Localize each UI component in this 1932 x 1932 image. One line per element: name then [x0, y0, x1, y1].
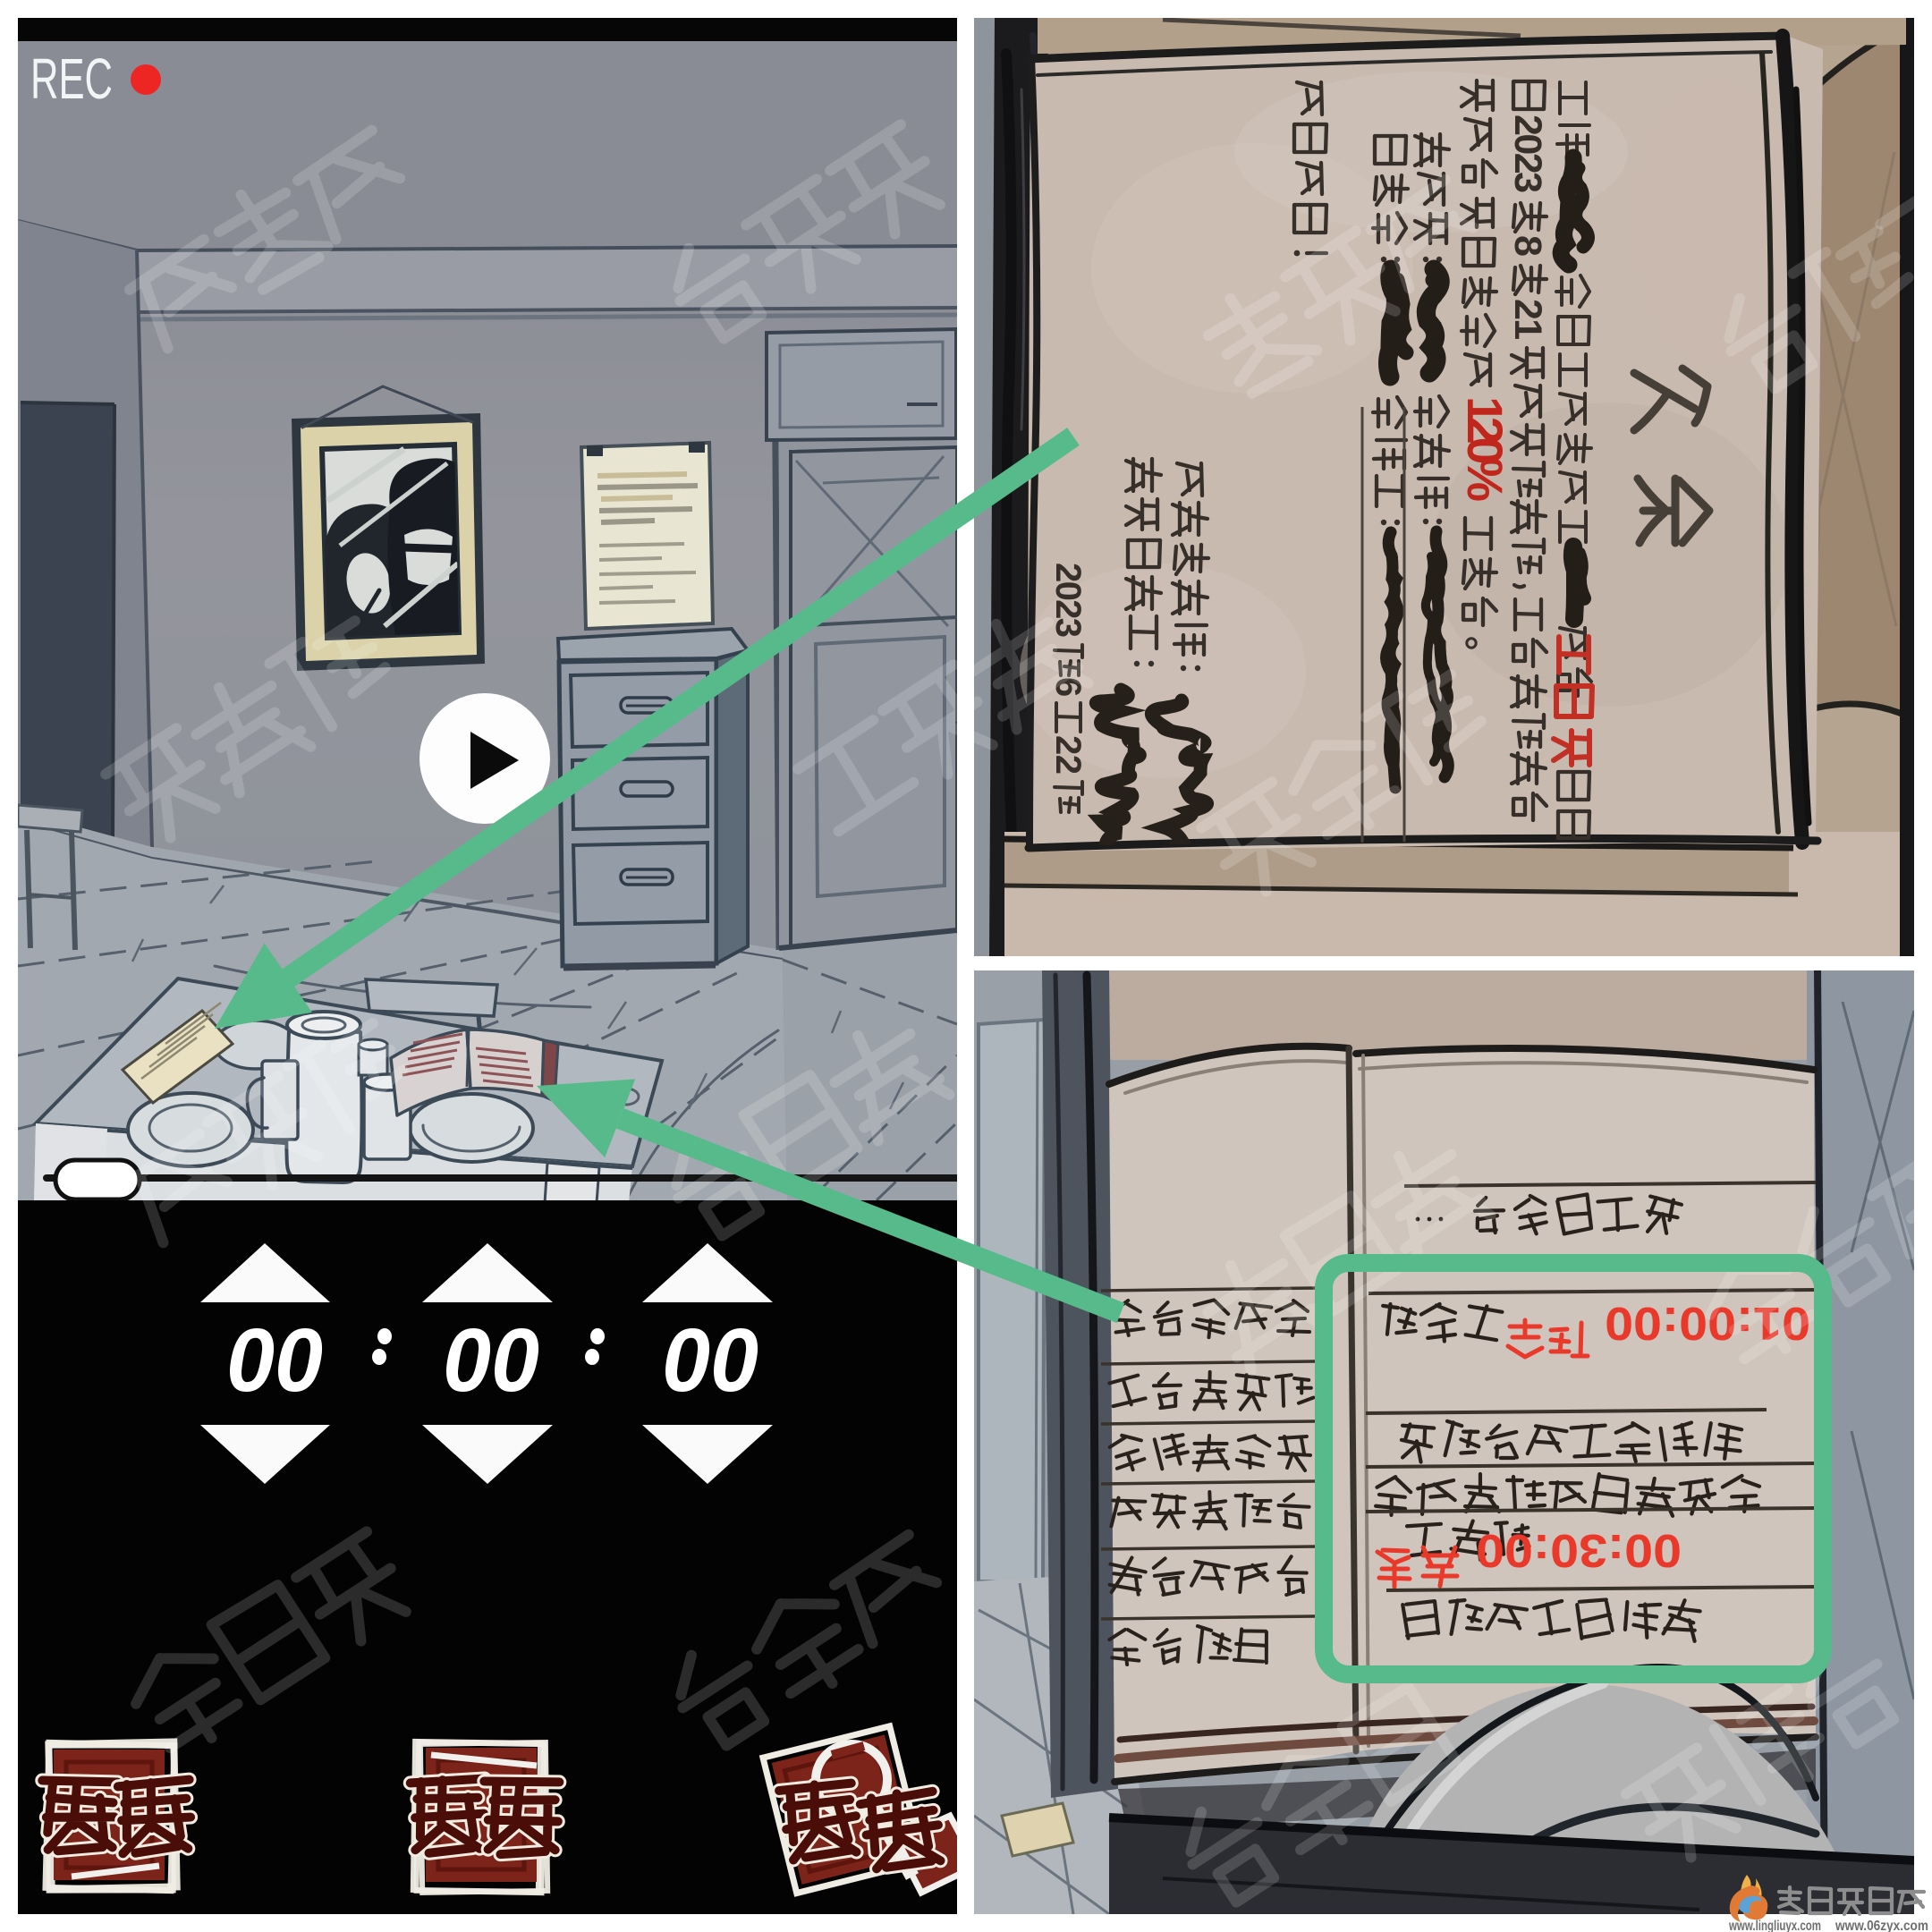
svg-text:00: 00 [443, 1310, 539, 1411]
svg-text:00:30:00: 00:30:00 [1476, 1524, 1682, 1576]
svg-text:REC: REC [30, 47, 113, 111]
svg-text:www.lingliuyx.com: www.lingliuyx.com [1728, 1919, 1821, 1932]
svg-text:2023: 2023 [1048, 563, 1088, 638]
svg-text:www.06zyx.com: www.06zyx.com [1835, 1919, 1928, 1932]
svg-text:120%: 120% [1457, 396, 1513, 502]
svg-text:22: 22 [1048, 735, 1088, 775]
svg-text:00: 00 [226, 1310, 323, 1411]
svg-text:21: 21 [1506, 299, 1549, 340]
svg-text:00: 00 [662, 1310, 758, 1411]
svg-text:8: 8 [1506, 235, 1549, 257]
svg-text:2023: 2023 [1506, 114, 1549, 193]
